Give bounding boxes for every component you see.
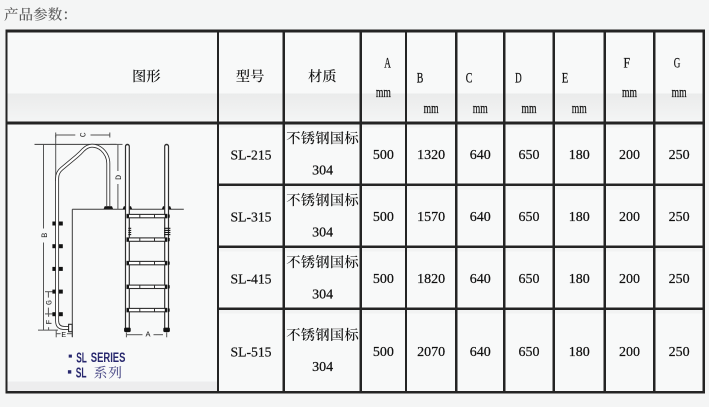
svg-text:500: 500 [373,272,394,287]
svg-text:200: 200 [619,148,640,163]
svg-text:200: 200 [619,210,640,225]
svg-text:180: 180 [569,148,590,163]
svg-text:mm: mm [672,85,687,101]
svg-text:500: 500 [373,148,394,163]
svg-text:650: 650 [519,148,540,163]
svg-text:250: 250 [669,148,690,163]
svg-text:250: 250 [669,272,690,287]
svg-text:650: 650 [519,210,540,225]
svg-text:E: E [61,332,67,340]
svg-text:F: F [624,55,631,71]
svg-text:mm: mm [522,101,537,117]
svg-text:180: 180 [569,345,590,360]
svg-text:B: B [41,233,50,238]
svg-text:500: 500 [373,210,394,225]
svg-text:D: D [115,175,124,180]
svg-text:640: 640 [470,148,491,163]
svg-text:250: 250 [669,345,690,360]
svg-text:304: 304 [312,163,333,178]
svg-text:640: 640 [470,272,491,287]
svg-text:mm: mm [376,85,391,101]
svg-text:2070: 2070 [417,345,445,360]
svg-text:E: E [562,70,569,86]
svg-text:250: 250 [669,210,690,225]
svg-text:mm: mm [473,101,488,117]
svg-text:D: D [515,70,522,86]
svg-text:G: G [45,300,54,305]
svg-text:650: 650 [519,345,540,360]
svg-text:C: C [466,70,473,86]
svg-text:200: 200 [619,272,640,287]
svg-text:SL-215: SL-215 [231,149,272,164]
svg-text:A: A [384,55,391,71]
svg-text:640: 640 [470,210,491,225]
svg-text:G: G [674,55,681,71]
svg-text:C: C [80,132,89,137]
svg-text:180: 180 [569,210,590,225]
svg-text:200: 200 [619,345,640,360]
svg-text:mm: mm [424,101,439,117]
svg-text:1320: 1320 [417,148,445,163]
svg-text:mm: mm [572,101,587,117]
svg-text:640: 640 [470,345,491,360]
svg-text:650: 650 [519,272,540,287]
svg-text:1570: 1570 [417,210,445,225]
svg-text:B: B [417,70,424,86]
svg-text:mm: mm [622,85,637,101]
svg-text:A: A [146,332,152,340]
svg-text:SERIES: SERIES [91,350,126,366]
svg-text:SL-315: SL-315 [231,211,272,226]
svg-text:304: 304 [312,360,333,375]
svg-text:SL-415: SL-415 [231,273,272,288]
svg-text:304: 304 [312,287,333,302]
svg-text:180: 180 [569,272,590,287]
svg-text:F: F [46,319,55,324]
svg-text:1820: 1820 [417,272,445,287]
svg-text:304: 304 [312,225,333,240]
svg-text:SL: SL [76,365,87,382]
svg-text:SL-515: SL-515 [231,345,272,360]
svg-text:500: 500 [373,345,394,360]
